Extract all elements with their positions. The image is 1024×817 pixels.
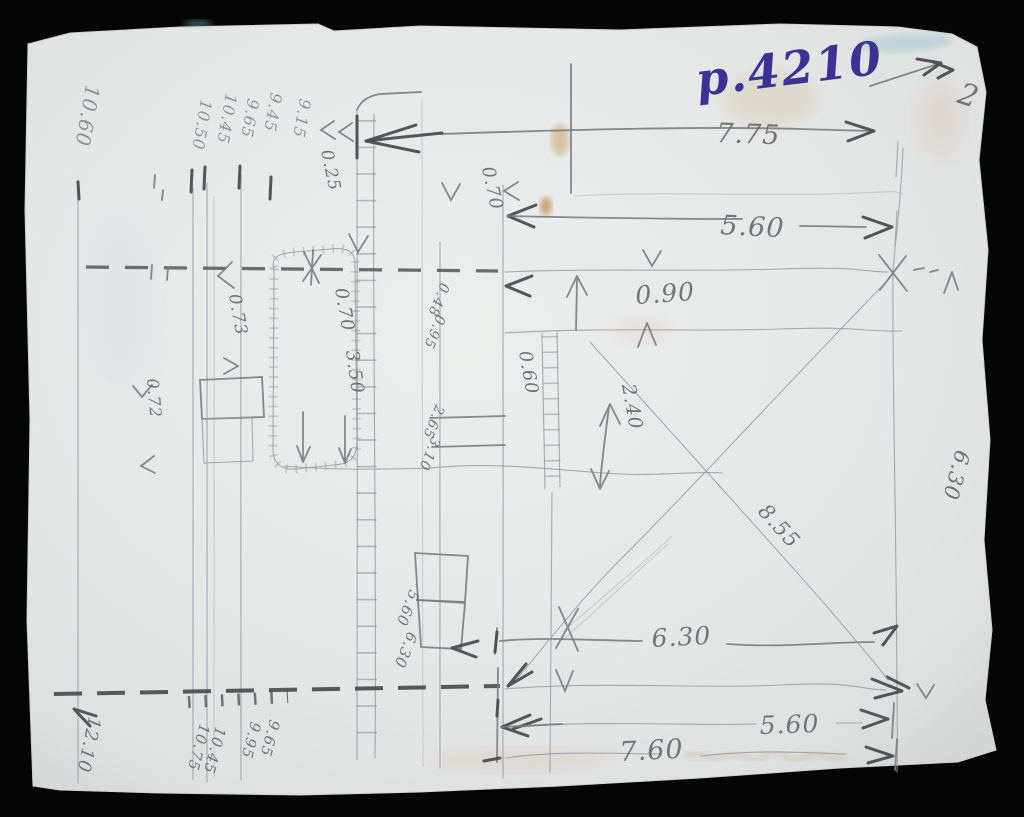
dim-5-60-bottom: 5.60: [759, 709, 820, 740]
sketch-canvas: p.4210210.6010.5010.459.659.459.150.250.…: [0, 0, 1024, 817]
dim-6-30-bottom: 6.30: [651, 621, 712, 653]
dim-0-90: 0.90: [634, 277, 696, 310]
photo-of-sketch: p.4210210.6010.5010.459.659.459.150.250.…: [0, 0, 1024, 817]
dim-0-72: 0.72: [143, 378, 165, 419]
paper-sheet: [25, 20, 996, 795]
dim-7-75: 7.75: [716, 118, 781, 151]
dim-7-60: 7.60: [619, 734, 685, 768]
dim-5-60-upper: 5.60: [720, 210, 786, 244]
